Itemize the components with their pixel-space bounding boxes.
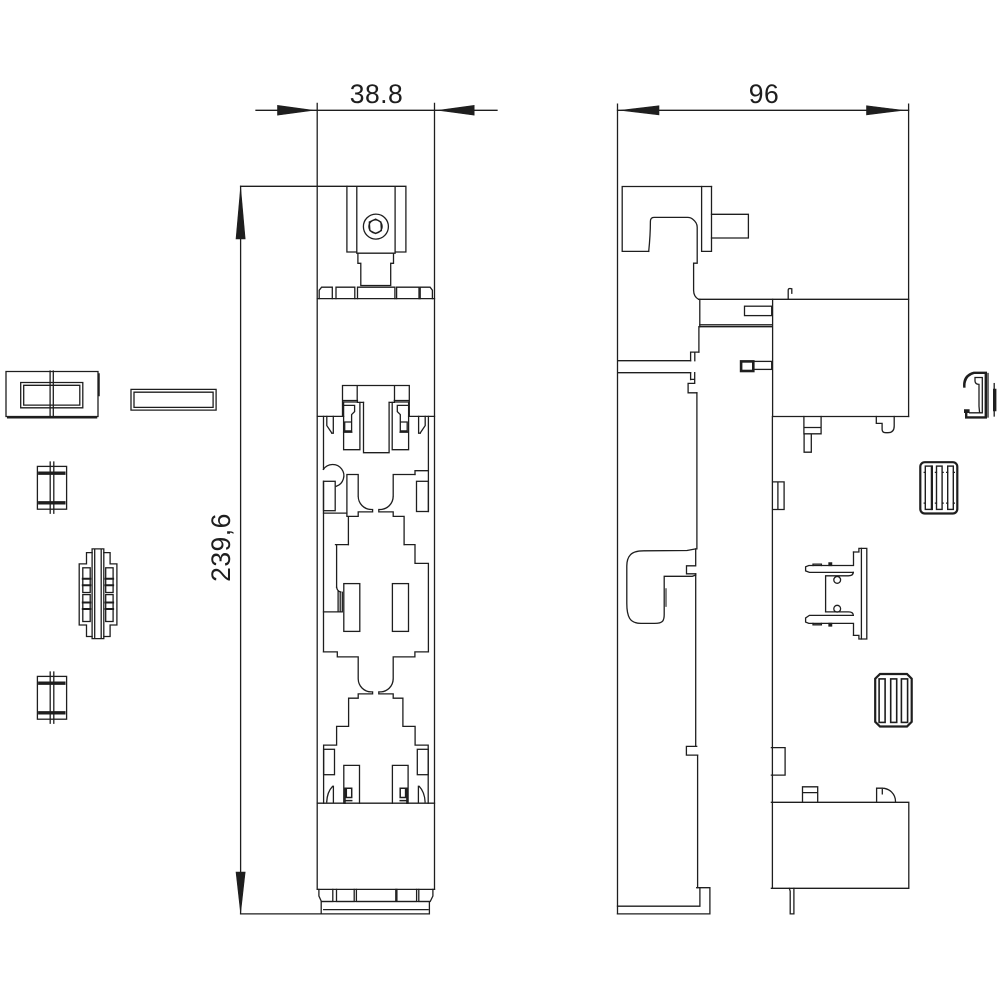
svg-text:96: 96 xyxy=(749,79,779,109)
svg-text:38.8: 38.8 xyxy=(350,79,404,109)
svg-text:239,6: 239,6 xyxy=(206,513,236,582)
